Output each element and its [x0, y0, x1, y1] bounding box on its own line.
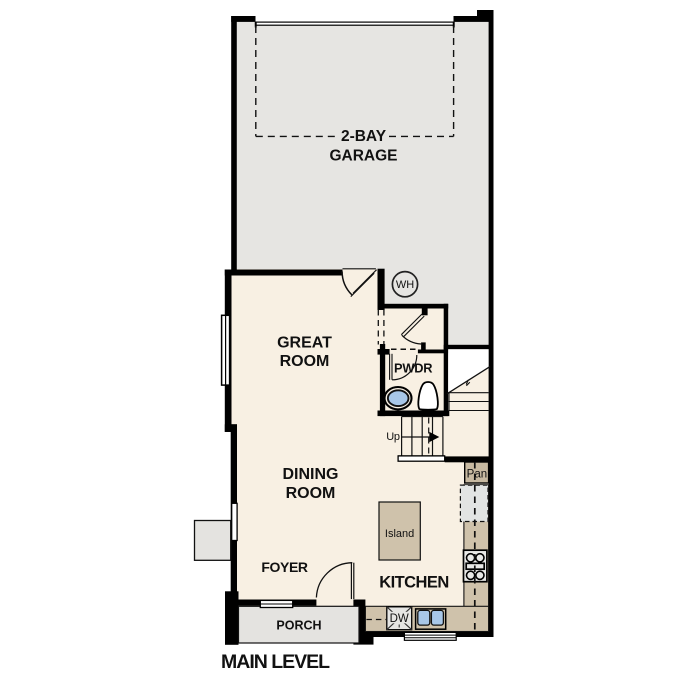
- svg-text:Pan: Pan: [467, 468, 487, 480]
- svg-text:FOYER: FOYER: [261, 559, 308, 575]
- svg-text:ROOM: ROOM: [280, 353, 330, 370]
- svg-text:PWDR: PWDR: [394, 360, 432, 375]
- svg-text:DW: DW: [390, 613, 409, 625]
- svg-text:ROOM: ROOM: [286, 485, 336, 502]
- svg-text:PORCH: PORCH: [276, 619, 321, 633]
- svg-text:DINING: DINING: [283, 466, 339, 483]
- svg-text:GREAT: GREAT: [277, 334, 332, 351]
- svg-text:KITCHEN: KITCHEN: [379, 574, 448, 592]
- svg-text:Island: Island: [385, 528, 414, 540]
- svg-text:WH: WH: [396, 279, 414, 291]
- svg-text:2-BAY: 2-BAY: [341, 128, 387, 145]
- svg-text:Up: Up: [386, 431, 400, 443]
- svg-text:MAIN LEVEL: MAIN LEVEL: [221, 651, 330, 673]
- svg-text:GARAGE: GARAGE: [329, 148, 397, 165]
